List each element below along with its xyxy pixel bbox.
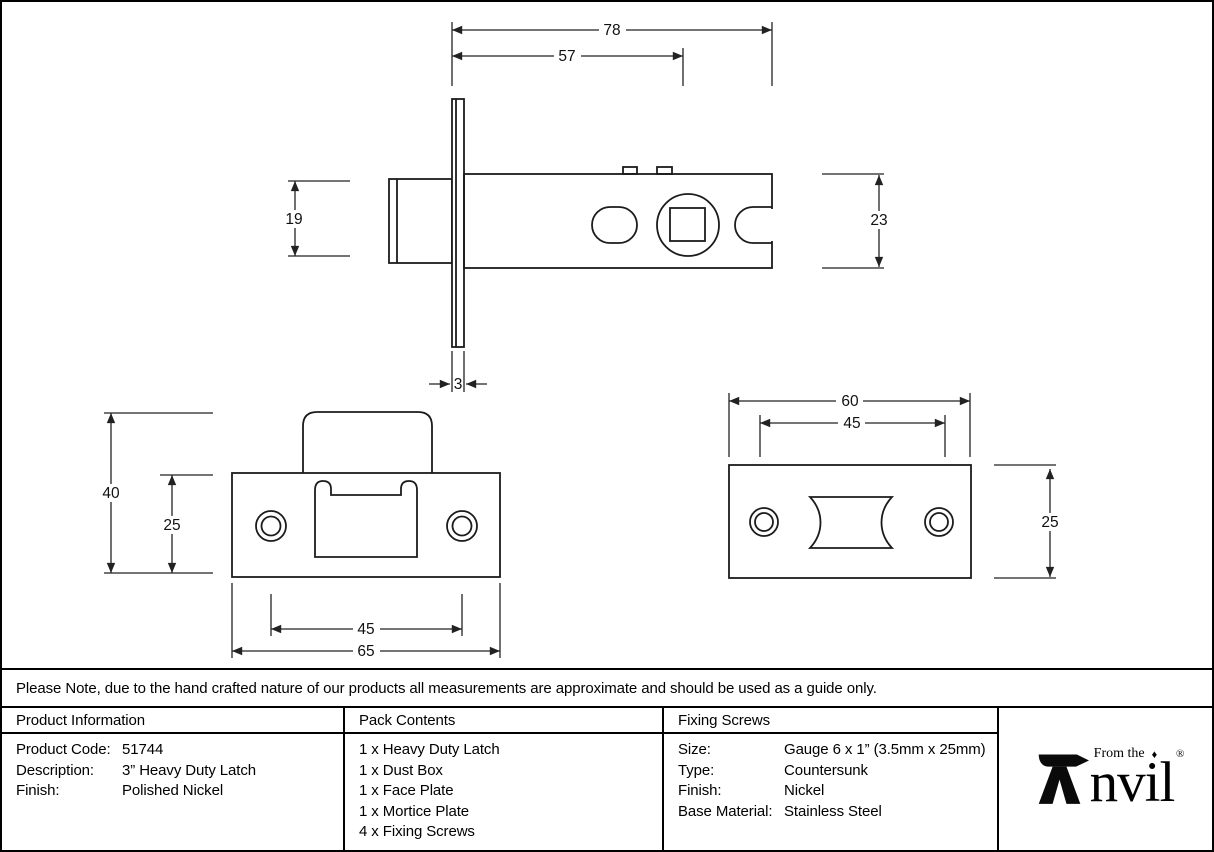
table-row: Size: Gauge 6 x 1” (3.5mm x 25mm) bbox=[678, 740, 987, 761]
dimension-labels: 78 57 19 23 3 40 25 45 65 60 45 25 bbox=[98, 21, 1063, 660]
spec-table: Product Information Product Code: 51744 … bbox=[2, 708, 1212, 850]
dim-faceplate-thickness: 3 bbox=[454, 376, 463, 393]
row-value: Stainless Steel bbox=[784, 802, 882, 823]
measurement-note: Please Note, due to the hand crafted nat… bbox=[2, 668, 1212, 708]
list-item: 1 x Face Plate bbox=[359, 781, 652, 802]
product-spec-sheet: 78 57 19 23 3 40 25 45 65 60 45 25 Pleas… bbox=[0, 0, 1214, 852]
face-plate-view bbox=[729, 465, 971, 578]
product-information-header: Product Information bbox=[2, 708, 343, 734]
row-label: Description: bbox=[16, 761, 122, 782]
spindle-square-hole bbox=[670, 208, 705, 241]
table-row: Description: 3” Heavy Duty Latch bbox=[16, 761, 333, 782]
latch-bolt bbox=[389, 179, 452, 263]
spindle-follower bbox=[657, 194, 719, 256]
registered-trademark-icon: ® bbox=[1176, 748, 1184, 760]
row-label: Size: bbox=[678, 740, 784, 761]
case-lug bbox=[657, 167, 672, 174]
row-value: Gauge 6 x 1” (3.5mm x 25mm) bbox=[784, 740, 986, 761]
row-value: Countersunk bbox=[784, 761, 868, 782]
row-label: Type: bbox=[678, 761, 784, 782]
case-lug bbox=[623, 167, 637, 174]
screw-hole bbox=[447, 511, 477, 541]
dim-strike-overall-height: 40 bbox=[102, 485, 120, 502]
row-value: Polished Nickel bbox=[122, 781, 223, 802]
face-plate bbox=[729, 465, 971, 578]
case-oval-hole bbox=[592, 207, 637, 243]
strike-plate bbox=[232, 473, 500, 577]
screw-hole bbox=[256, 511, 286, 541]
dim-faceplate-overall-width: 60 bbox=[841, 393, 859, 410]
dim-case-height: 23 bbox=[870, 212, 887, 229]
table-row: Finish: Polished Nickel bbox=[16, 781, 333, 802]
dim-strike-screw-spacing: 45 bbox=[357, 621, 374, 638]
dimension-lines bbox=[104, 22, 1056, 658]
product-information-column: Product Information Product Code: 51744 … bbox=[2, 708, 343, 850]
latch-side-view bbox=[389, 99, 776, 347]
diamond-icon: ♦ bbox=[1152, 749, 1158, 761]
list-item: 1 x Heavy Duty Latch bbox=[359, 740, 652, 761]
latch-faceplate bbox=[452, 99, 464, 347]
tagline-text: From the bbox=[1094, 746, 1145, 762]
table-row: Base Material: Stainless Steel bbox=[678, 802, 987, 823]
latch-case bbox=[464, 174, 772, 268]
row-value: 51744 bbox=[122, 740, 163, 761]
from-the-anvil-logo: From the ♦ nvil ® bbox=[1037, 746, 1175, 804]
row-value: 3” Heavy Duty Latch bbox=[122, 761, 256, 782]
dim-overall-length: 78 bbox=[603, 22, 620, 39]
logo-tagline: From the ♦ bbox=[1094, 746, 1158, 762]
dim-case-depth: 57 bbox=[558, 48, 575, 65]
note-text: Please Note, due to the hand crafted nat… bbox=[16, 680, 877, 697]
strike-latch-box bbox=[315, 481, 417, 557]
logo-wordmark: nvil bbox=[1090, 762, 1175, 804]
dim-bolt-height: 19 bbox=[285, 211, 302, 228]
anvil-icon bbox=[1037, 750, 1089, 804]
pack-contents-column: Pack Contents 1 x Heavy Duty Latch 1 x D… bbox=[343, 708, 662, 850]
dim-faceplate-plate-height: 25 bbox=[1041, 514, 1058, 531]
fixing-screws-header: Fixing Screws bbox=[664, 708, 997, 734]
dim-strike-overall-width: 65 bbox=[357, 643, 374, 660]
dim-strike-plate-height: 25 bbox=[163, 517, 180, 534]
list-item: 1 x Dust Box bbox=[359, 761, 652, 782]
table-row: Type: Countersunk bbox=[678, 761, 987, 782]
row-label: Product Code: bbox=[16, 740, 122, 761]
dim-faceplate-screw-spacing: 45 bbox=[843, 415, 860, 432]
table-row: Product Code: 51744 bbox=[16, 740, 333, 761]
strike-tab bbox=[303, 412, 432, 473]
case-notch bbox=[735, 207, 772, 243]
pack-contents-header: Pack Contents bbox=[345, 708, 662, 734]
row-label: Finish: bbox=[678, 781, 784, 802]
brand-logo-cell: From the ♦ nvil ® bbox=[997, 708, 1212, 850]
logo-text: From the ♦ nvil ® bbox=[1090, 746, 1175, 804]
mortice-plate-view bbox=[232, 412, 500, 577]
latch-cutout bbox=[810, 497, 892, 548]
list-item: 4 x Fixing Screws bbox=[359, 822, 652, 843]
technical-drawing: 78 57 19 23 3 40 25 45 65 60 45 25 bbox=[0, 0, 1214, 668]
row-label: Finish: bbox=[16, 781, 122, 802]
row-label: Base Material: bbox=[678, 802, 784, 823]
table-row: Finish: Nickel bbox=[678, 781, 987, 802]
row-value: Nickel bbox=[784, 781, 824, 802]
fixing-screws-column: Fixing Screws Size: Gauge 6 x 1” (3.5mm … bbox=[662, 708, 997, 850]
list-item: 1 x Mortice Plate bbox=[359, 802, 652, 823]
